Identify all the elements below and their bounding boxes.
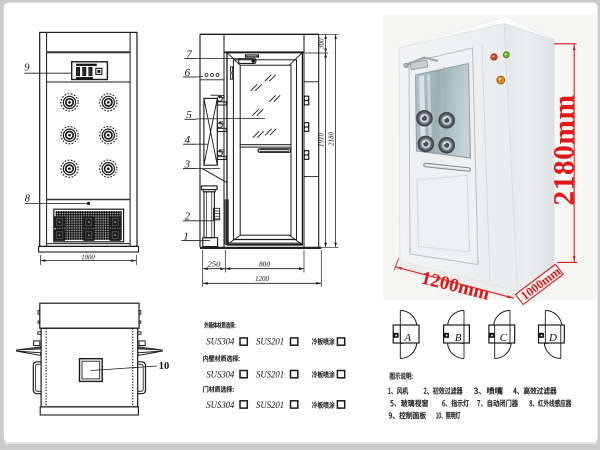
svg-text:SUS304: SUS304 (206, 400, 234, 411)
svg-text:8: 8 (25, 194, 31, 205)
svg-text:1000: 1000 (81, 253, 95, 262)
svg-text:800: 800 (259, 259, 270, 268)
svg-text:C: C (500, 332, 508, 344)
svg-text:SUS304: SUS304 (206, 337, 234, 348)
svg-text:SUS201: SUS201 (256, 370, 284, 381)
svg-text:10: 10 (159, 361, 170, 372)
svg-text:9: 9 (24, 63, 30, 74)
svg-text:D: D (548, 332, 557, 344)
svg-text:250: 250 (208, 259, 221, 268)
svg-text:B: B (455, 332, 462, 344)
svg-text:SUS201: SUS201 (256, 400, 284, 411)
svg-text:1910: 1910 (317, 133, 325, 148)
svg-text:SUS201: SUS201 (256, 337, 284, 348)
svg-text:1200: 1200 (255, 274, 269, 283)
svg-text:2180: 2180 (327, 132, 335, 147)
svg-text:2180mm: 2180mm (549, 94, 581, 205)
svg-text:A: A (403, 332, 411, 344)
svg-text:300: 300 (317, 38, 325, 50)
svg-text:SUS304: SUS304 (206, 370, 234, 381)
